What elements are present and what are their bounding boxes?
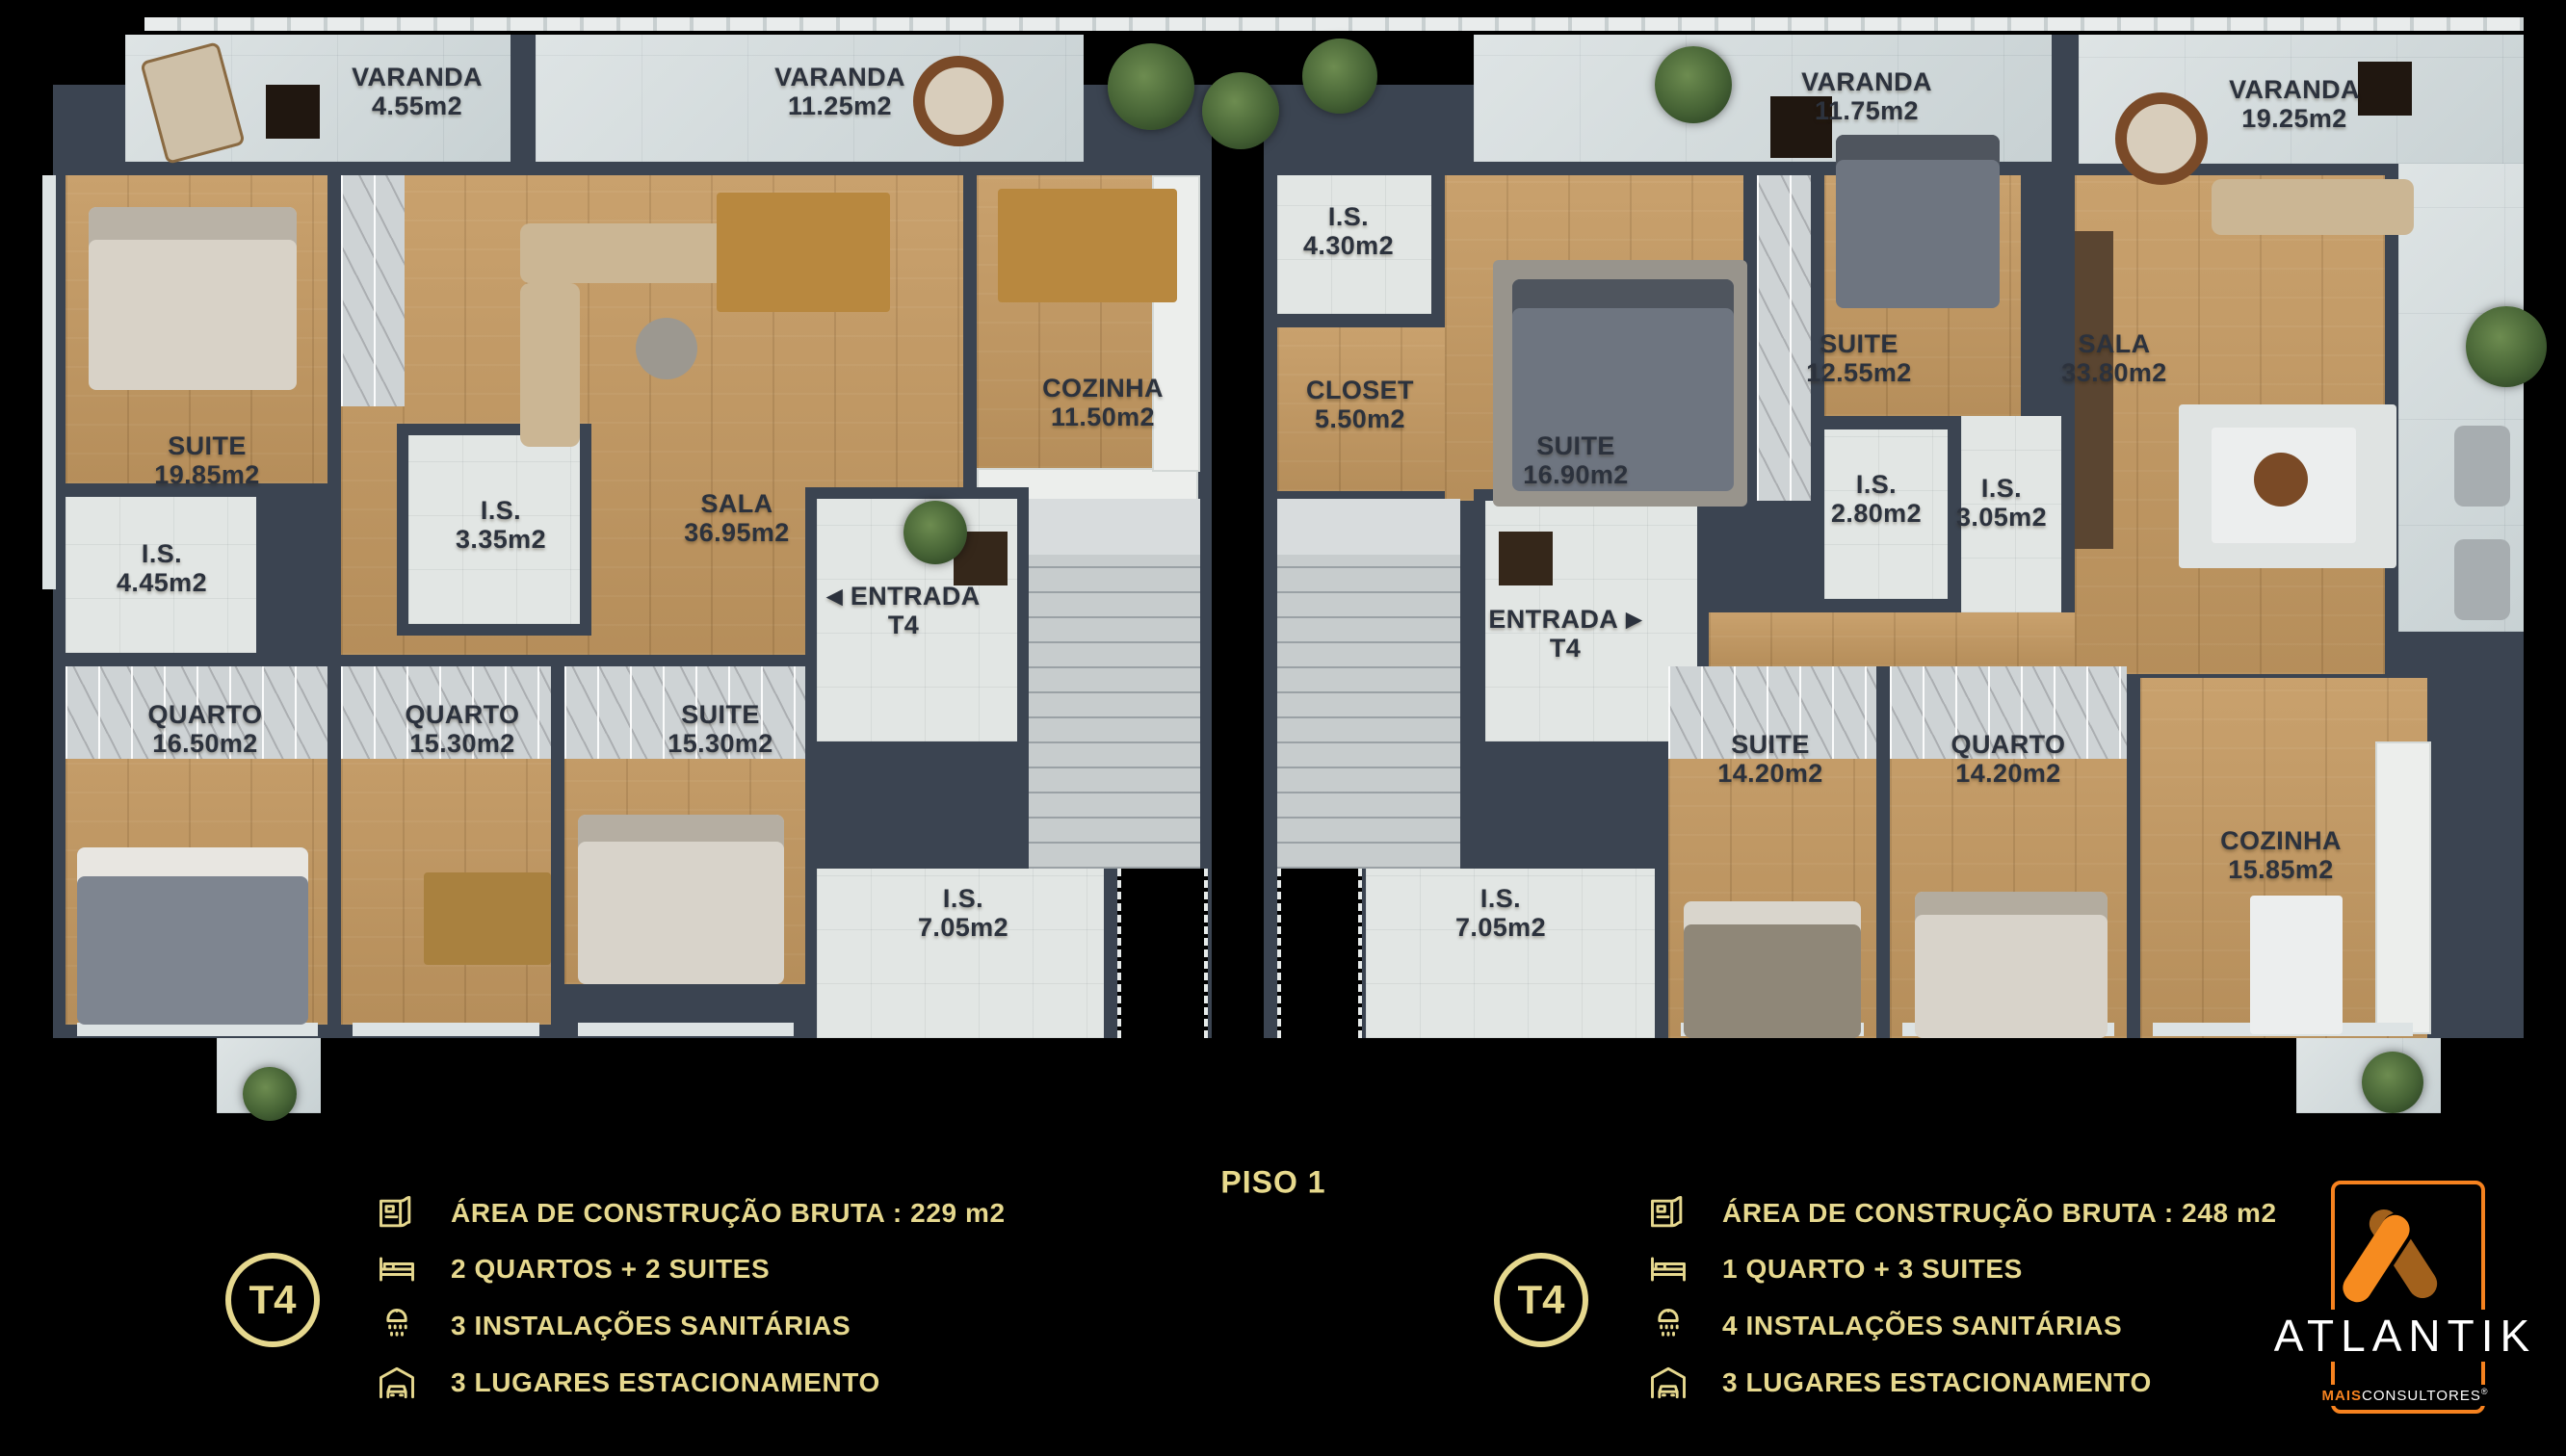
furniture-egg-chair	[2115, 92, 2208, 185]
plant	[1302, 39, 1377, 114]
right-arrow-icon: ▶	[1626, 609, 1642, 631]
stair-landing	[1277, 499, 1460, 555]
legend-text: 3 LUGARES ESTACIONAMENTO	[451, 1367, 880, 1398]
furniture-bed	[1836, 135, 2000, 308]
shower-icon	[1647, 1305, 1689, 1347]
label-is-705-left: I.S. 7.05m2	[918, 884, 1008, 942]
room-name: SALA	[2061, 329, 2166, 358]
room-area: 3.05m2	[1956, 503, 2047, 532]
room-name: I.S.	[1455, 884, 1546, 913]
unit-badge-right: T4	[1494, 1253, 1588, 1347]
furniture-bed	[89, 207, 297, 390]
garage-icon	[1647, 1362, 1689, 1404]
entrance-name: ENTRADA	[1488, 605, 1618, 634]
legend-text: 2 QUARTOS + 2 SUITES	[451, 1254, 770, 1285]
entrance-line: ◀ ENTRADA	[826, 582, 980, 611]
furniture-coffee-table	[636, 318, 697, 379]
room-area: 15.85m2	[2220, 855, 2342, 884]
stair-landing	[1029, 499, 1200, 555]
room-area: 5.50m2	[1306, 404, 1414, 433]
plant	[2362, 1052, 2423, 1113]
legend-text: 4 INSTALAÇÕES SANITÁRIAS	[1722, 1311, 2122, 1341]
label-sala-3380: SALA 33.80m2	[2061, 329, 2166, 387]
furniture-bed	[77, 847, 308, 1025]
room-name: VARANDA	[2229, 75, 2360, 104]
room-area: 7.05m2	[918, 913, 1008, 942]
legend-row: 3 INSTALAÇÕES SANITÁRIAS	[376, 1301, 851, 1351]
label-varanda-1175: VARANDA 11.75m2	[1801, 67, 1932, 125]
window-strip	[578, 1023, 794, 1036]
room-area: 11.25m2	[774, 91, 905, 120]
label-varanda-455: VARANDA 4.55m2	[352, 63, 483, 120]
plant	[903, 501, 967, 564]
room-name: COZINHA	[1042, 374, 1164, 403]
label-suite-1985: SUITE 19.85m2	[154, 431, 259, 489]
room-name: SALA	[684, 489, 789, 518]
label-quarto-1530: QUARTO 15.30m2	[406, 700, 520, 758]
room-area: 15.30m2	[406, 729, 520, 758]
room-name: VARANDA	[1801, 67, 1932, 96]
label-suite-1530: SUITE 15.30m2	[668, 700, 772, 758]
label-is-430: I.S. 4.30m2	[1303, 202, 1394, 260]
room-area: 4.45m2	[117, 568, 207, 597]
plant	[2466, 306, 2547, 387]
label-sala-3695: SALA 36.95m2	[684, 489, 789, 547]
wardrobe-corridor	[341, 175, 405, 406]
room-name: SUITE	[154, 431, 259, 460]
furniture-bed	[1684, 901, 1861, 1038]
room-area: 12.55m2	[1806, 358, 1911, 387]
varanda-pillar	[511, 35, 536, 162]
room-name: I.S.	[1303, 202, 1394, 231]
furniture-centerpiece	[2254, 453, 2308, 507]
furniture-egg-chair	[913, 56, 1004, 146]
room-name: SUITE	[668, 700, 772, 729]
legend-text: ÁREA DE CONSTRUÇÃO BRUTA : 248 m2	[1722, 1198, 2277, 1229]
plant	[1655, 46, 1732, 123]
legend-row: 2 QUARTOS + 2 SUITES	[376, 1244, 770, 1294]
planter-pot	[2358, 62, 2412, 116]
void-right	[1277, 869, 1362, 1038]
room-name: QUARTO	[1951, 730, 2066, 759]
room-area: 19.85m2	[154, 460, 259, 489]
room-area: 3.35m2	[456, 525, 546, 554]
blueprint-icon	[376, 1192, 418, 1235]
legend-row: 1 QUARTO + 3 SUITES	[1647, 1244, 2023, 1294]
label-entrada-right: ENTRADA ▶ T4	[1488, 605, 1641, 663]
room-name: SUITE	[1523, 431, 1628, 460]
legend-text: 3 INSTALAÇÕES SANITÁRIAS	[451, 1311, 851, 1341]
label-quarto-1650: QUARTO 16.50m2	[148, 700, 263, 758]
entry-cabinet	[1499, 532, 1553, 585]
furniture-sofa	[520, 223, 742, 283]
room-name: I.S.	[918, 884, 1008, 913]
roof-edge	[144, 17, 2524, 31]
bed-icon	[1647, 1248, 1689, 1290]
logo-frame	[2331, 1181, 2485, 1414]
entrance-line: ENTRADA ▶	[1488, 605, 1641, 634]
legend-row: 3 LUGARES ESTACIONAMENTO	[1647, 1358, 2152, 1408]
furniture-desk	[424, 872, 551, 965]
furniture-terrace-chair	[2454, 426, 2510, 507]
kitchenette-counter	[2075, 231, 2113, 549]
furniture-sofa	[2212, 179, 2414, 235]
legend-row: 3 LUGARES ESTACIONAMENTO	[376, 1358, 880, 1408]
bed-icon	[376, 1248, 418, 1290]
legend-row: ÁREA DE CONSTRUÇÃO BRUTA : 229 m2	[376, 1188, 1006, 1238]
legend-text: 3 LUGARES ESTACIONAMENTO	[1722, 1367, 2152, 1398]
label-suite-1255: SUITE 12.55m2	[1806, 329, 1911, 387]
label-is-280: I.S. 2.80m2	[1831, 470, 1922, 528]
kitchen-counter-right	[2375, 741, 2431, 1034]
room-area: 36.95m2	[684, 518, 789, 547]
wardrobe-column	[1757, 175, 1811, 501]
room-name: QUARTO	[406, 700, 520, 729]
label-cozinha-1585: COZINHA 15.85m2	[2220, 826, 2342, 884]
room-area: 15.30m2	[668, 729, 772, 758]
label-suite-1690: SUITE 16.90m2	[1523, 431, 1628, 489]
furniture-sofa	[520, 283, 580, 447]
room-area: 11.50m2	[1042, 403, 1164, 431]
room-name: I.S.	[1831, 470, 1922, 499]
void-left	[1117, 869, 1208, 1038]
floor-title: PISO 1	[1220, 1165, 1325, 1201]
legend-row: ÁREA DE CONSTRUÇÃO BRUTA : 248 m2	[1647, 1188, 2277, 1238]
room-name: I.S.	[117, 539, 207, 568]
label-varanda-1925: VARANDA 19.25m2	[2229, 75, 2360, 133]
label-is-445: I.S. 4.45m2	[117, 539, 207, 597]
entrance-unit: T4	[826, 611, 980, 639]
room-name: QUARTO	[148, 700, 263, 729]
label-quarto-1420: QUARTO 14.20m2	[1951, 730, 2066, 788]
logo-subtitle: MAISCONSULTORES®	[2315, 1385, 2497, 1406]
furniture-bed	[578, 815, 784, 984]
room-area: 7.05m2	[1455, 913, 1546, 942]
entrance-name: ENTRADA	[851, 582, 981, 611]
furniture-dining-table	[717, 193, 890, 312]
room-area: 33.80m2	[2061, 358, 2166, 387]
room-name: COZINHA	[2220, 826, 2342, 855]
furniture-island-table	[2250, 896, 2343, 1034]
window-strip	[353, 1023, 539, 1036]
furniture-bed	[1915, 892, 2108, 1038]
legend-text: ÁREA DE CONSTRUÇÃO BRUTA : 229 m2	[451, 1198, 1006, 1229]
room-area: 14.20m2	[1951, 759, 2066, 788]
room-area: 4.30m2	[1303, 231, 1394, 260]
legend-text: 1 QUARTO + 3 SUITES	[1722, 1254, 2023, 1285]
label-entrada-left: ◀ ENTRADA T4	[826, 582, 980, 639]
room-area: 11.75m2	[1801, 96, 1932, 125]
plant	[1108, 43, 1194, 130]
label-is-705-right: I.S. 7.05m2	[1455, 884, 1546, 942]
room-name: I.S.	[456, 496, 546, 525]
entrance-unit: T4	[1488, 634, 1641, 663]
corridor-right	[1709, 612, 2075, 666]
room-area: 4.55m2	[352, 91, 483, 120]
unit-badge-left: T4	[225, 1253, 320, 1347]
label-cozinha-1150: COZINHA 11.50m2	[1042, 374, 1164, 431]
window-strip	[77, 1023, 318, 1036]
room-name: VARANDA	[774, 63, 905, 91]
blueprint-icon	[1647, 1192, 1689, 1235]
label-is-305: I.S. 3.05m2	[1956, 474, 2047, 532]
left-arrow-icon: ◀	[826, 585, 843, 608]
room-area: 16.90m2	[1523, 460, 1628, 489]
label-is-335: I.S. 3.35m2	[456, 496, 546, 554]
shower-icon	[376, 1305, 418, 1347]
room-name: SUITE	[1806, 329, 1911, 358]
logo-sub-rest: CONSULTORES	[2362, 1388, 2481, 1404]
room-area: 2.80m2	[1831, 499, 1922, 528]
room-name: VARANDA	[352, 63, 483, 91]
room-name: SUITE	[1717, 730, 1822, 759]
furniture-kitchen-table	[998, 189, 1177, 302]
varanda-pillar	[2052, 35, 2079, 162]
room-name: CLOSET	[1306, 376, 1414, 404]
room-area: 19.25m2	[2229, 104, 2360, 133]
logo-sub-bold: MAIS	[2322, 1388, 2363, 1404]
garage-icon	[376, 1362, 418, 1404]
room-area: 14.20m2	[1717, 759, 1822, 788]
room-name: I.S.	[1956, 474, 2047, 503]
plant	[1202, 72, 1279, 149]
floor-plan-page: VARANDA 4.55m2 VARANDA 11.25m2 VARANDA 1…	[0, 0, 2566, 1456]
planter-pot	[266, 85, 320, 139]
furniture-terrace-chair	[2454, 539, 2510, 620]
registered-mark: ®	[2481, 1387, 2489, 1396]
legend-row: 4 INSTALAÇÕES SANITÁRIAS	[1647, 1301, 2122, 1351]
window-strip	[42, 175, 56, 589]
label-closet-550: CLOSET 5.50m2	[1306, 376, 1414, 433]
plant	[243, 1067, 297, 1121]
logo-brand: ATLANTIK	[2268, 1310, 2542, 1362]
label-suite-1420: SUITE 14.20m2	[1717, 730, 1822, 788]
room-area: 16.50m2	[148, 729, 263, 758]
label-varanda-1125: VARANDA 11.25m2	[774, 63, 905, 120]
